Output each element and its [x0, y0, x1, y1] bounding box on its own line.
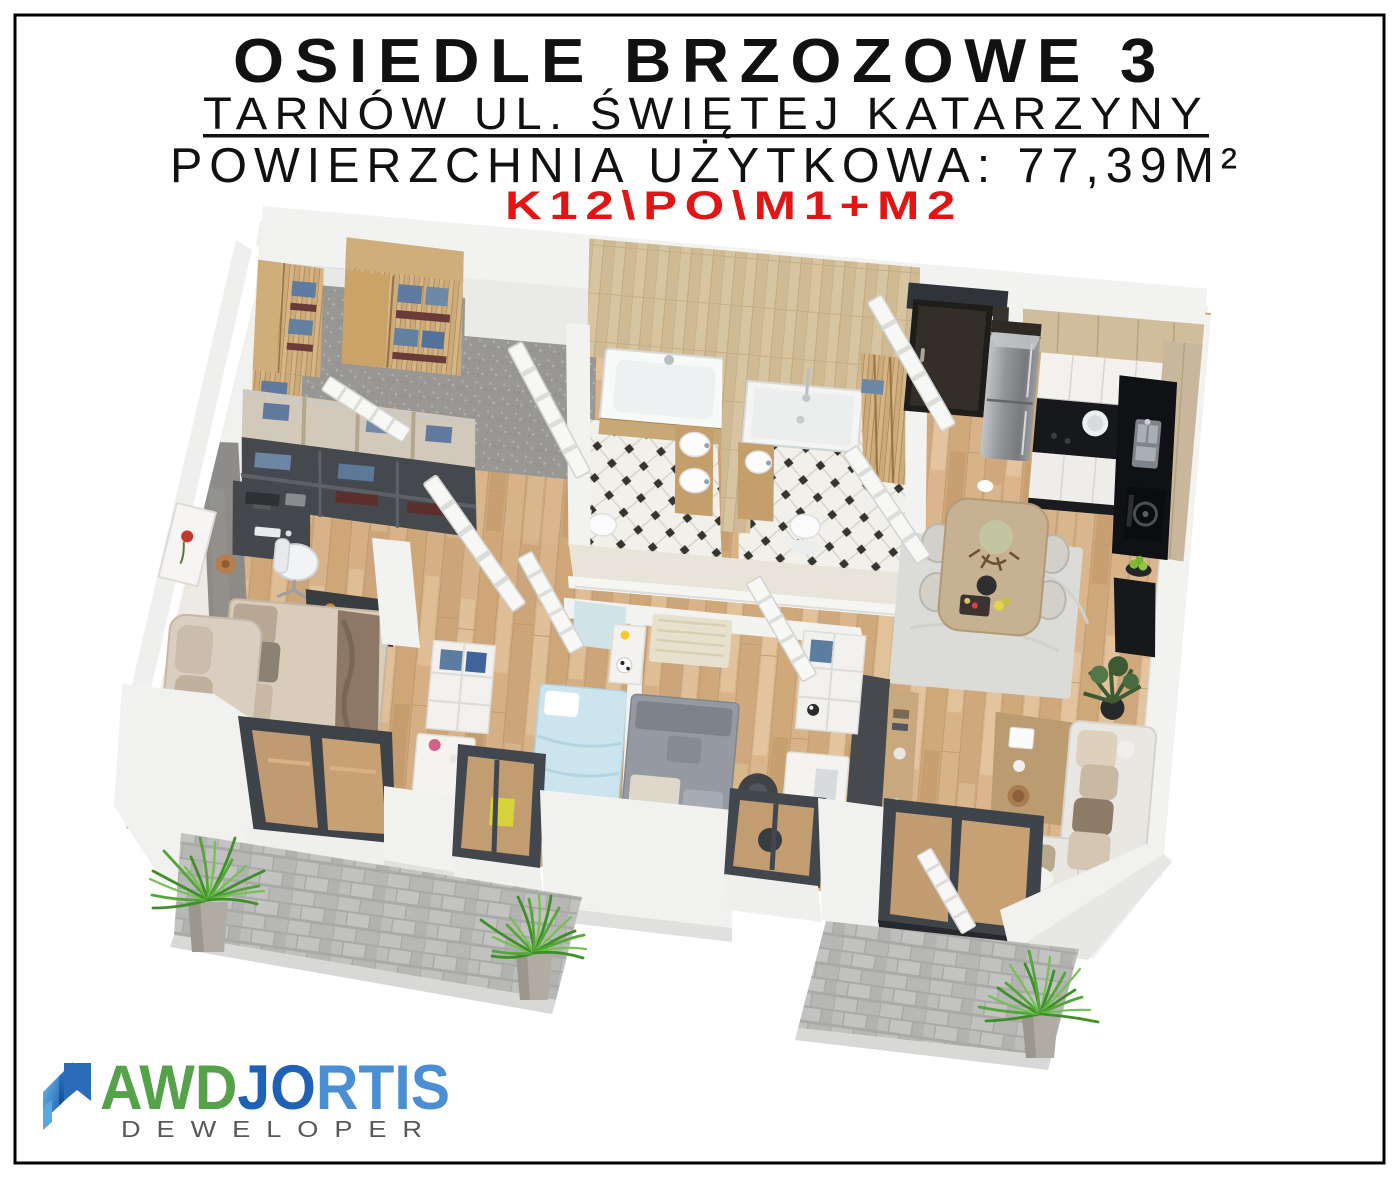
svg-text:TARNÓW UL. ŚWIĘTEJ KATARZYNY: TARNÓW UL. ŚWIĘTEJ KATARZYNY	[203, 88, 1209, 139]
svg-text:OSIEDLE BRZOZOWE 3: OSIEDLE BRZOZOWE 3	[233, 27, 1167, 96]
svg-text:K12\PO\M1+M2: K12\PO\M1+M2	[505, 184, 963, 228]
svg-text:AWDJORTIS: AWDJORTIS	[100, 1053, 450, 1123]
svg-text:DEWELOPER: DEWELOPER	[121, 1116, 438, 1142]
